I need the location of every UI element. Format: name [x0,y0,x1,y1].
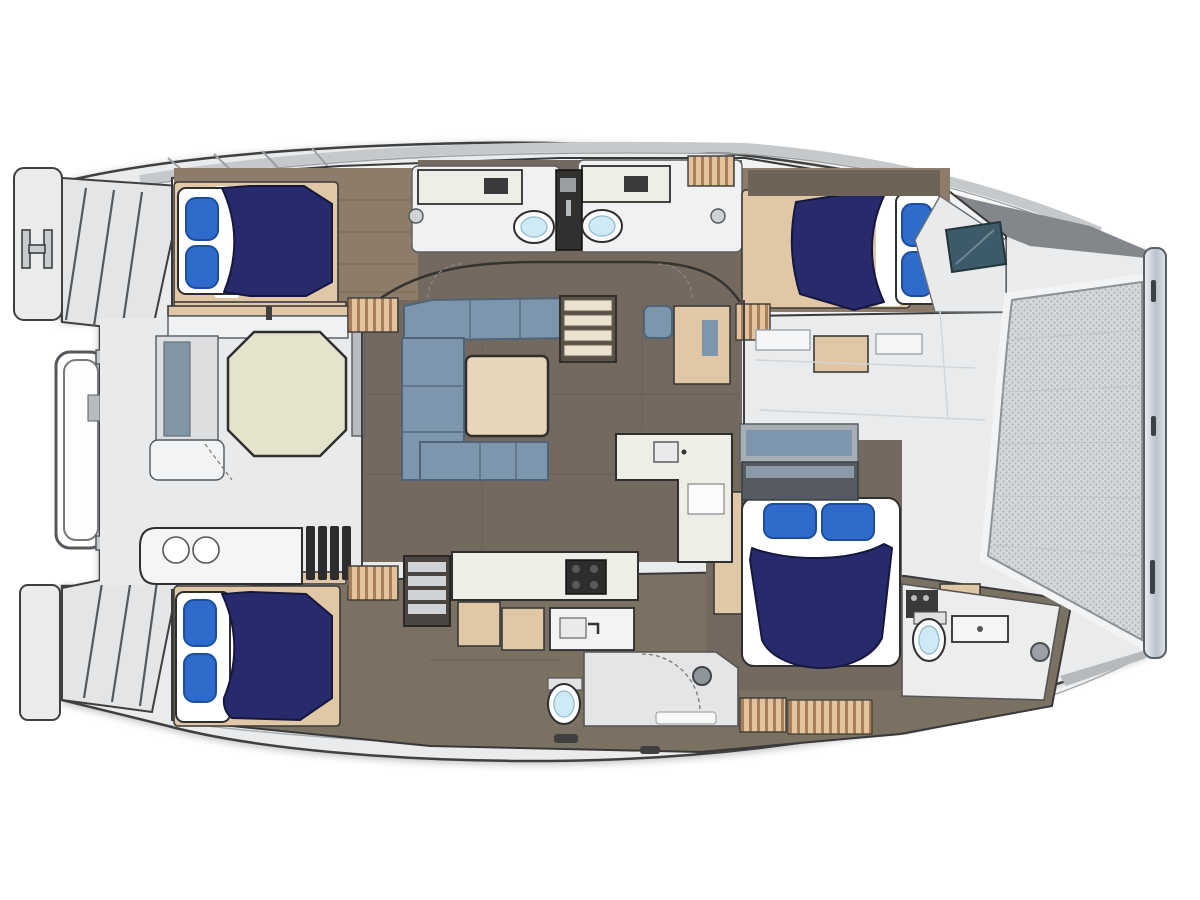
shower-column-panel [560,178,576,192]
locker-salon-corner [348,298,398,332]
fwd-cabin-wood-sole [788,700,872,734]
grill-burner-2 [193,537,219,563]
forward-crossbeam [1144,248,1166,658]
transom-fitting [88,395,100,421]
foredeck-storage-box [814,336,868,372]
cockpit-corner-seat [150,440,224,480]
shower-column-handle [566,200,571,216]
hull-steps-slats [740,698,786,732]
pillow [184,600,216,646]
toilet-fwd-starboard-bowl [919,626,939,654]
toilet-aft-bowl [521,217,547,237]
locker-port-fwd [688,156,734,186]
nav-chair [644,306,672,338]
cleat [554,734,578,743]
island-faucet [682,450,687,455]
cleat [640,746,660,754]
pillow [186,198,218,240]
pillow [184,654,216,702]
fwd-port-duvet [792,192,884,310]
sofa-bottom-run [420,442,548,480]
aft-port-duvet [222,186,332,296]
pillow [764,504,816,538]
starboard-swim-platform [20,585,60,720]
catamaran-layout-plan [0,0,1200,900]
sink-aft [484,178,508,194]
island-sink [654,442,678,462]
deck-hatch-1 [756,330,810,350]
deck-light-port-fwd [711,209,725,223]
fwd-starboard-duvet [750,544,892,668]
salon-table [466,356,548,436]
galley-counter [452,552,638,600]
aft-starboard-duvet [222,592,332,720]
cabinet-knob [923,595,929,601]
pillow [186,246,218,288]
fwd-port-shelf-band [748,170,940,196]
stove [566,560,606,594]
cockpit-side-cushion [164,342,190,436]
shower-bench [656,712,716,724]
deck-fitting [1031,643,1049,661]
deck-hatch-2 [876,334,922,354]
nav-desk-inset [702,320,718,356]
cockpit-bench-top-trim [168,306,348,316]
locker-starboard-aft [348,566,398,600]
grill-burner-1 [163,537,189,563]
headboard-shelf [746,466,854,478]
pillow [822,504,874,540]
cockpit-table [228,332,346,456]
island-cabinet [688,484,724,514]
toilet-mid-bowl [554,691,574,717]
galley-cabinet-2 [502,608,544,650]
deck-light-port-aft [409,209,423,223]
sink-fwd [624,176,648,192]
cabinet-knob [911,595,917,601]
davit-rail-inner [64,360,98,540]
fwd-head-faucet [977,626,983,632]
catamaran-layout-page [0,0,1200,900]
toilet-fwd-bowl [589,216,615,236]
foredeck-bench-cushion [746,430,852,456]
shower-drain [693,667,711,685]
cleat [266,306,272,320]
galley-cabinet-1 [458,602,500,646]
galley-sink [560,618,586,638]
